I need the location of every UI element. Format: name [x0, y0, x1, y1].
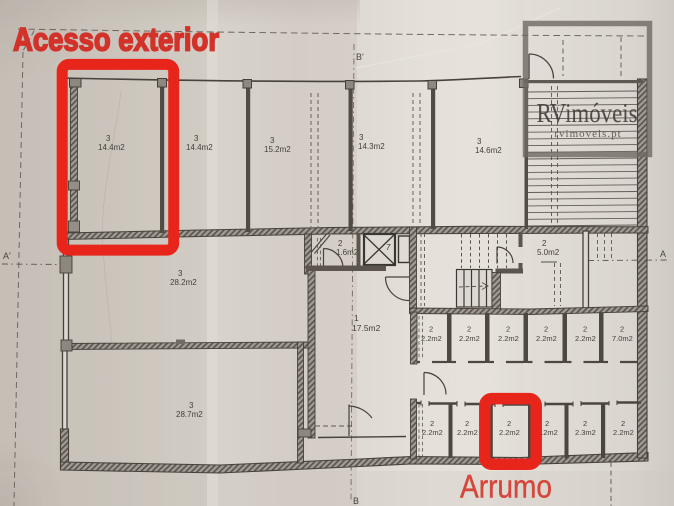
- svg-text:2: 2: [542, 239, 547, 248]
- svg-text:3: 3: [194, 134, 199, 143]
- svg-text:3: 3: [359, 133, 364, 142]
- svg-text:2.2m2: 2.2m2: [422, 428, 443, 437]
- svg-text:2: 2: [620, 325, 624, 334]
- svg-text:14.3m2: 14.3m2: [358, 142, 385, 151]
- svg-text:A: A: [660, 249, 666, 259]
- svg-text:2.2m2: 2.2m2: [575, 334, 596, 343]
- svg-text:2.2m2: 2.2m2: [499, 428, 520, 437]
- svg-text:7: 7: [386, 243, 391, 252]
- svg-text:14.6m2: 14.6m2: [475, 146, 502, 155]
- svg-text:2.3m2: 2.3m2: [575, 428, 596, 437]
- svg-text:28.2m2: 28.2m2: [170, 278, 197, 287]
- svg-text:2: 2: [467, 325, 471, 334]
- svg-text:2.2m2: 2.2m2: [421, 334, 442, 343]
- svg-text:2.2m2: 2.2m2: [536, 334, 557, 343]
- svg-text:2.2m2: 2.2m2: [457, 428, 478, 437]
- svg-text:3: 3: [270, 136, 275, 145]
- svg-text:2: 2: [583, 419, 587, 428]
- svg-text:15.2m2: 15.2m2: [264, 145, 291, 154]
- svg-text:2: 2: [338, 239, 343, 248]
- svg-text:1.6m2: 1.6m2: [336, 248, 359, 257]
- svg-text:2.2m2: 2.2m2: [459, 334, 480, 343]
- svg-text:2.2m2: 2.2m2: [498, 334, 519, 343]
- svg-text:2: 2: [506, 325, 510, 334]
- svg-text:2: 2: [430, 419, 434, 428]
- svg-text:B: B: [353, 496, 359, 506]
- svg-text:2.2m2: 2.2m2: [613, 428, 634, 437]
- svg-text:1: 1: [354, 313, 359, 323]
- svg-text:2: 2: [507, 419, 511, 428]
- svg-text:Arrumo: Arrumo: [460, 469, 552, 505]
- svg-text:2: 2: [583, 325, 587, 334]
- svg-text:RVimóveis: RVimóveis: [537, 98, 638, 128]
- svg-text:5.0m2: 5.0m2: [537, 248, 560, 257]
- svg-text:7.0m2: 7.0m2: [612, 334, 633, 343]
- svg-text:2: 2: [544, 325, 548, 334]
- svg-text:Acesso exterior: Acesso exterior: [13, 22, 219, 58]
- svg-text:2: 2: [621, 419, 625, 428]
- svg-text:2: 2: [429, 325, 433, 334]
- svg-text:2: 2: [545, 419, 549, 428]
- svg-text:28.7m2: 28.7m2: [176, 410, 203, 419]
- svg-text:3: 3: [106, 134, 111, 143]
- svg-text:3: 3: [477, 137, 482, 146]
- svg-text:A': A': [3, 251, 11, 261]
- svg-text:2: 2: [465, 419, 469, 428]
- svg-text:14.4m2: 14.4m2: [98, 143, 125, 152]
- svg-text:3: 3: [189, 401, 194, 410]
- svg-text:B': B': [356, 52, 364, 62]
- svg-text:3: 3: [178, 269, 183, 278]
- svg-text:rvimoveis.pt: rvimoveis.pt: [554, 128, 621, 140]
- svg-text:14.4m2: 14.4m2: [186, 143, 213, 152]
- svg-text:17.5m2: 17.5m2: [352, 323, 381, 333]
